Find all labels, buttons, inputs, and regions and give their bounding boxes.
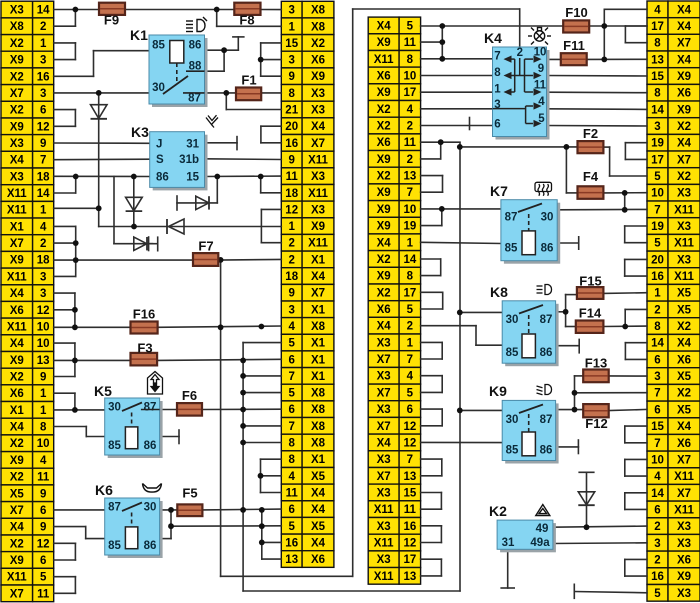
svg-text:3: 3 bbox=[288, 304, 294, 316]
svg-text:X9: X9 bbox=[377, 271, 391, 283]
svg-text:5: 5 bbox=[40, 572, 47, 584]
svg-text:4: 4 bbox=[40, 455, 47, 467]
svg-text:X4: X4 bbox=[677, 4, 692, 16]
svg-text:3: 3 bbox=[40, 271, 46, 283]
svg-text:87: 87 bbox=[108, 502, 121, 514]
svg-text:2: 2 bbox=[654, 521, 660, 533]
svg-text:2: 2 bbox=[407, 154, 413, 166]
svg-text:X4: X4 bbox=[10, 338, 25, 350]
svg-text:X2: X2 bbox=[677, 321, 691, 333]
svg-text:X1: X1 bbox=[311, 454, 326, 466]
svg-text:K8: K8 bbox=[490, 284, 508, 300]
svg-text:X1: X1 bbox=[311, 254, 326, 266]
svg-text:J: J bbox=[156, 138, 162, 150]
svg-text:18: 18 bbox=[37, 171, 50, 183]
svg-text:86: 86 bbox=[541, 243, 554, 255]
svg-text:K1: K1 bbox=[130, 27, 148, 43]
svg-text:8: 8 bbox=[407, 271, 414, 283]
svg-text:X4: X4 bbox=[311, 537, 326, 549]
svg-text:X7: X7 bbox=[377, 421, 391, 433]
svg-text:7: 7 bbox=[288, 421, 294, 433]
svg-text:1: 1 bbox=[40, 388, 47, 400]
svg-text:X2: X2 bbox=[10, 438, 24, 450]
svg-text:X8: X8 bbox=[311, 404, 326, 416]
svg-text:X11: X11 bbox=[308, 238, 328, 250]
svg-text:14: 14 bbox=[651, 488, 664, 500]
svg-text:X2: X2 bbox=[10, 472, 24, 484]
svg-text:86: 86 bbox=[144, 540, 157, 552]
svg-text:F6: F6 bbox=[182, 388, 197, 403]
svg-text:6: 6 bbox=[40, 555, 46, 567]
svg-text:X9: X9 bbox=[677, 571, 691, 583]
svg-text:X3: X3 bbox=[377, 404, 391, 416]
svg-text:5: 5 bbox=[407, 304, 414, 316]
svg-text:4: 4 bbox=[40, 221, 47, 233]
svg-text:X2: X2 bbox=[10, 105, 24, 117]
svg-text:6: 6 bbox=[654, 354, 660, 366]
svg-text:X3: X3 bbox=[377, 337, 391, 349]
svg-text:X4: X4 bbox=[677, 21, 692, 33]
svg-text:15: 15 bbox=[186, 172, 199, 184]
svg-text:X2: X2 bbox=[377, 171, 391, 183]
svg-text:2: 2 bbox=[654, 554, 660, 566]
svg-text:87: 87 bbox=[144, 402, 157, 414]
svg-text:X8: X8 bbox=[311, 321, 326, 333]
svg-text:87: 87 bbox=[540, 414, 553, 426]
svg-text:11: 11 bbox=[37, 588, 50, 600]
svg-text:X3: X3 bbox=[10, 138, 24, 150]
svg-text:2: 2 bbox=[407, 121, 413, 133]
svg-text:F16: F16 bbox=[133, 307, 155, 322]
svg-text:1: 1 bbox=[494, 84, 501, 96]
svg-text:X4: X4 bbox=[10, 288, 25, 300]
svg-text:X8: X8 bbox=[311, 21, 326, 33]
svg-text:X4: X4 bbox=[311, 121, 326, 133]
svg-text:87: 87 bbox=[540, 314, 553, 326]
svg-text:K6: K6 bbox=[95, 482, 113, 498]
svg-text:X6: X6 bbox=[377, 71, 391, 83]
svg-text:85: 85 bbox=[108, 540, 121, 552]
svg-text:X8: X8 bbox=[311, 421, 326, 433]
svg-text:6: 6 bbox=[288, 504, 294, 516]
svg-text:6: 6 bbox=[40, 505, 46, 517]
svg-text:10: 10 bbox=[403, 71, 416, 83]
svg-text:19: 19 bbox=[651, 138, 664, 150]
svg-text:1: 1 bbox=[40, 405, 47, 417]
svg-text:X7: X7 bbox=[311, 288, 325, 300]
svg-text:X6: X6 bbox=[10, 388, 24, 400]
svg-text:21: 21 bbox=[285, 105, 298, 117]
svg-text:7: 7 bbox=[407, 187, 413, 199]
svg-text:K5: K5 bbox=[94, 383, 112, 399]
svg-text:30: 30 bbox=[506, 414, 519, 426]
svg-text:2: 2 bbox=[517, 47, 523, 59]
svg-text:X3: X3 bbox=[377, 554, 391, 566]
svg-text:5: 5 bbox=[288, 388, 295, 400]
svg-text:X4: X4 bbox=[10, 422, 25, 434]
svg-text:7: 7 bbox=[40, 155, 46, 167]
svg-text:X4: X4 bbox=[10, 522, 25, 534]
svg-text:16: 16 bbox=[285, 138, 298, 150]
svg-text:X9: X9 bbox=[10, 121, 24, 133]
svg-text:K2: K2 bbox=[489, 503, 507, 519]
svg-text:X8: X8 bbox=[311, 388, 326, 400]
svg-text:X7: X7 bbox=[10, 588, 24, 600]
svg-text:3: 3 bbox=[288, 5, 294, 17]
svg-text:9: 9 bbox=[288, 71, 294, 83]
svg-text:85: 85 bbox=[152, 40, 165, 52]
svg-text:6: 6 bbox=[40, 105, 46, 117]
svg-text:9: 9 bbox=[40, 372, 46, 384]
svg-text:1: 1 bbox=[40, 205, 47, 217]
svg-text:X1: X1 bbox=[311, 304, 326, 316]
svg-text:K3: K3 bbox=[131, 124, 149, 140]
svg-text:1: 1 bbox=[654, 288, 661, 300]
svg-text:X11: X11 bbox=[308, 155, 328, 167]
svg-text:X4: X4 bbox=[311, 488, 326, 500]
svg-text:3: 3 bbox=[40, 288, 46, 300]
svg-text:17: 17 bbox=[403, 287, 416, 299]
svg-text:X11: X11 bbox=[308, 188, 328, 200]
svg-text:X9: X9 bbox=[677, 71, 691, 83]
svg-text:X11: X11 bbox=[7, 188, 27, 200]
svg-text:X2: X2 bbox=[377, 121, 391, 133]
svg-text:12: 12 bbox=[37, 305, 50, 317]
svg-text:X6: X6 bbox=[677, 554, 691, 566]
svg-text:8: 8 bbox=[494, 67, 501, 79]
svg-text:F11: F11 bbox=[563, 38, 585, 53]
svg-text:X9: X9 bbox=[311, 71, 325, 83]
svg-text:X2: X2 bbox=[677, 121, 691, 133]
svg-text:X9: X9 bbox=[10, 555, 24, 567]
svg-text:10: 10 bbox=[37, 322, 50, 334]
svg-text:8: 8 bbox=[288, 454, 295, 466]
svg-text:X7: X7 bbox=[311, 138, 325, 150]
svg-text:X4: X4 bbox=[677, 138, 692, 150]
svg-text:X2: X2 bbox=[377, 254, 391, 266]
svg-text:3: 3 bbox=[654, 538, 660, 550]
svg-text:X2: X2 bbox=[677, 171, 691, 183]
svg-text:14: 14 bbox=[403, 254, 416, 266]
svg-text:16: 16 bbox=[651, 571, 664, 583]
svg-text:2: 2 bbox=[654, 304, 660, 316]
svg-text:30: 30 bbox=[541, 212, 554, 224]
svg-text:10: 10 bbox=[37, 438, 50, 450]
svg-text:7: 7 bbox=[288, 371, 294, 383]
svg-text:X11: X11 bbox=[7, 572, 27, 584]
svg-text:3: 3 bbox=[654, 121, 660, 133]
svg-text:31: 31 bbox=[502, 537, 515, 549]
svg-text:X11: X11 bbox=[374, 571, 394, 583]
svg-text:31b: 31b bbox=[179, 154, 199, 166]
svg-text:X6: X6 bbox=[311, 55, 325, 67]
svg-text:X4: X4 bbox=[377, 321, 392, 333]
svg-text:X4: X4 bbox=[677, 54, 692, 66]
svg-text:X6: X6 bbox=[311, 554, 325, 566]
svg-text:14: 14 bbox=[651, 104, 664, 116]
svg-text:16: 16 bbox=[37, 71, 50, 83]
svg-text:X8: X8 bbox=[311, 5, 326, 17]
svg-text:15: 15 bbox=[651, 71, 664, 83]
svg-text:X11: X11 bbox=[674, 271, 694, 283]
svg-text:8: 8 bbox=[40, 422, 47, 434]
svg-text:7: 7 bbox=[407, 454, 413, 466]
svg-text:F5: F5 bbox=[182, 486, 197, 501]
svg-text:2: 2 bbox=[40, 238, 46, 250]
svg-text:X11: X11 bbox=[374, 504, 394, 516]
svg-text:X2: X2 bbox=[377, 104, 391, 116]
svg-text:9: 9 bbox=[40, 522, 46, 534]
svg-text:30: 30 bbox=[506, 314, 519, 326]
svg-text:9: 9 bbox=[40, 138, 46, 150]
svg-text:1: 1 bbox=[40, 38, 47, 50]
svg-text:87: 87 bbox=[505, 212, 518, 224]
svg-text:3: 3 bbox=[40, 88, 46, 100]
svg-text:2: 2 bbox=[407, 321, 413, 333]
svg-text:14: 14 bbox=[37, 5, 50, 17]
svg-text:X11: X11 bbox=[7, 271, 27, 283]
svg-text:1: 1 bbox=[288, 221, 295, 233]
svg-text:X3: X3 bbox=[311, 88, 325, 100]
svg-text:X2: X2 bbox=[10, 38, 24, 50]
svg-text:11: 11 bbox=[286, 171, 299, 183]
svg-text:6: 6 bbox=[494, 119, 500, 131]
svg-text:X7: X7 bbox=[10, 238, 24, 250]
svg-text:X11: X11 bbox=[374, 538, 394, 550]
svg-text:11: 11 bbox=[404, 37, 417, 49]
svg-text:1: 1 bbox=[407, 337, 414, 349]
svg-text:X9: X9 bbox=[677, 104, 691, 116]
svg-text:13: 13 bbox=[403, 171, 416, 183]
svg-text:7: 7 bbox=[654, 438, 660, 450]
svg-text:4: 4 bbox=[654, 471, 661, 483]
svg-text:30: 30 bbox=[108, 402, 121, 414]
svg-text:8: 8 bbox=[654, 88, 661, 100]
svg-text:1: 1 bbox=[288, 21, 295, 33]
svg-text:9: 9 bbox=[40, 488, 46, 500]
svg-text:10: 10 bbox=[37, 338, 50, 350]
svg-text:X3: X3 bbox=[677, 188, 691, 200]
svg-text:F14: F14 bbox=[579, 306, 602, 321]
svg-text:4: 4 bbox=[407, 104, 414, 116]
svg-text:7: 7 bbox=[407, 354, 413, 366]
svg-text:X9: X9 bbox=[10, 355, 24, 367]
svg-text:20: 20 bbox=[285, 121, 298, 133]
svg-text:F15: F15 bbox=[579, 274, 601, 289]
svg-text:11: 11 bbox=[286, 488, 299, 500]
svg-text:85: 85 bbox=[505, 243, 518, 255]
svg-text:6: 6 bbox=[288, 404, 294, 416]
svg-text:F2: F2 bbox=[583, 126, 598, 141]
svg-text:11: 11 bbox=[404, 504, 417, 516]
svg-text:12: 12 bbox=[37, 538, 50, 550]
svg-text:X9: X9 bbox=[377, 87, 391, 99]
svg-text:9: 9 bbox=[288, 155, 294, 167]
svg-text:X9: X9 bbox=[311, 221, 325, 233]
svg-text:87: 87 bbox=[188, 93, 201, 105]
svg-text:X7: X7 bbox=[377, 354, 391, 366]
svg-text:X2: X2 bbox=[677, 388, 691, 400]
svg-text:X3: X3 bbox=[377, 454, 391, 466]
svg-text:86: 86 bbox=[156, 172, 169, 184]
svg-text:31: 31 bbox=[186, 138, 199, 150]
svg-text:7: 7 bbox=[654, 388, 660, 400]
svg-text:X8: X8 bbox=[10, 21, 25, 33]
svg-text:X5: X5 bbox=[677, 288, 692, 300]
svg-text:F13: F13 bbox=[585, 356, 607, 371]
svg-text:3: 3 bbox=[288, 55, 294, 67]
svg-text:X5: X5 bbox=[677, 304, 692, 316]
svg-text:15: 15 bbox=[285, 38, 298, 50]
svg-text:X11: X11 bbox=[674, 204, 694, 216]
svg-text:17: 17 bbox=[403, 87, 416, 99]
svg-text:X3: X3 bbox=[377, 371, 391, 383]
svg-text:9: 9 bbox=[288, 288, 294, 300]
svg-text:X2: X2 bbox=[377, 287, 391, 299]
svg-text:X3: X3 bbox=[311, 105, 325, 117]
svg-text:5: 5 bbox=[288, 521, 295, 533]
svg-text:86: 86 bbox=[540, 445, 553, 457]
svg-text:X3: X3 bbox=[677, 588, 691, 600]
svg-text:13: 13 bbox=[403, 571, 416, 583]
svg-text:15: 15 bbox=[651, 421, 664, 433]
svg-text:X6: X6 bbox=[677, 354, 691, 366]
svg-text:16: 16 bbox=[285, 537, 298, 549]
svg-text:8: 8 bbox=[288, 88, 295, 100]
svg-text:11: 11 bbox=[37, 472, 50, 484]
svg-text:13: 13 bbox=[403, 471, 416, 483]
svg-text:X11: X11 bbox=[674, 471, 694, 483]
svg-text:K9: K9 bbox=[489, 383, 507, 399]
svg-text:X6: X6 bbox=[677, 438, 691, 450]
svg-text:X4: X4 bbox=[311, 271, 326, 283]
svg-text:X1: X1 bbox=[10, 221, 25, 233]
svg-text:12: 12 bbox=[403, 538, 416, 550]
svg-text:13: 13 bbox=[651, 54, 664, 66]
svg-text:X4: X4 bbox=[311, 504, 326, 516]
svg-text:2: 2 bbox=[288, 238, 294, 250]
svg-text:X2: X2 bbox=[10, 372, 24, 384]
svg-text:X4: X4 bbox=[377, 237, 392, 249]
svg-text:X5: X5 bbox=[10, 488, 25, 500]
svg-text:F9: F9 bbox=[104, 13, 119, 28]
svg-text:5: 5 bbox=[654, 171, 661, 183]
svg-text:X8: X8 bbox=[311, 438, 326, 450]
svg-text:12: 12 bbox=[403, 437, 416, 449]
svg-text:X9: X9 bbox=[10, 255, 24, 267]
svg-text:30: 30 bbox=[144, 502, 157, 514]
svg-text:4: 4 bbox=[654, 4, 661, 16]
svg-text:X4: X4 bbox=[10, 155, 25, 167]
svg-text:12: 12 bbox=[403, 421, 416, 433]
svg-text:F12: F12 bbox=[585, 416, 607, 431]
svg-text:3: 3 bbox=[654, 371, 660, 383]
svg-text:X6: X6 bbox=[377, 137, 391, 149]
svg-text:5: 5 bbox=[654, 588, 661, 600]
svg-text:K4: K4 bbox=[484, 30, 502, 46]
svg-text:F4: F4 bbox=[583, 169, 599, 184]
svg-text:4: 4 bbox=[288, 471, 295, 483]
svg-text:8: 8 bbox=[407, 54, 414, 66]
svg-text:X7: X7 bbox=[10, 505, 24, 517]
svg-text:X3: X3 bbox=[677, 521, 691, 533]
svg-text:16: 16 bbox=[651, 271, 664, 283]
svg-text:X5: X5 bbox=[677, 371, 692, 383]
svg-text:X5: X5 bbox=[677, 404, 692, 416]
svg-text:X7: X7 bbox=[10, 88, 24, 100]
svg-text:18: 18 bbox=[285, 271, 298, 283]
svg-text:X1: X1 bbox=[311, 371, 326, 383]
svg-text:15: 15 bbox=[403, 488, 416, 500]
svg-text:17: 17 bbox=[403, 554, 416, 566]
svg-text:X3: X3 bbox=[377, 488, 391, 500]
svg-text:19: 19 bbox=[651, 221, 664, 233]
svg-text:86: 86 bbox=[144, 440, 157, 452]
svg-text:49: 49 bbox=[536, 523, 549, 535]
svg-text:X7: X7 bbox=[377, 387, 391, 399]
svg-text:X11: X11 bbox=[374, 54, 394, 66]
svg-text:10: 10 bbox=[651, 454, 664, 466]
svg-text:X9: X9 bbox=[377, 187, 391, 199]
svg-text:X7: X7 bbox=[677, 38, 691, 50]
svg-text:6: 6 bbox=[288, 354, 294, 366]
svg-text:13: 13 bbox=[37, 355, 50, 367]
svg-text:2: 2 bbox=[40, 21, 46, 33]
svg-text:X2: X2 bbox=[311, 38, 325, 50]
svg-text:X3: X3 bbox=[677, 221, 691, 233]
svg-text:X6: X6 bbox=[10, 305, 24, 317]
svg-text:X7: X7 bbox=[377, 471, 391, 483]
svg-text:F1: F1 bbox=[241, 73, 256, 88]
svg-text:8: 8 bbox=[654, 321, 661, 333]
svg-text:X5: X5 bbox=[311, 471, 326, 483]
svg-text:4: 4 bbox=[407, 371, 414, 383]
svg-text:6: 6 bbox=[654, 504, 660, 516]
svg-text:F10: F10 bbox=[565, 5, 587, 20]
svg-text:X5: X5 bbox=[311, 521, 326, 533]
svg-text:X11: X11 bbox=[7, 322, 27, 334]
svg-text:4: 4 bbox=[288, 321, 295, 333]
svg-text:6: 6 bbox=[407, 404, 413, 416]
svg-text:X3: X3 bbox=[10, 5, 24, 17]
svg-text:F8: F8 bbox=[239, 13, 254, 28]
svg-text:X2: X2 bbox=[10, 71, 24, 83]
svg-text:3: 3 bbox=[40, 55, 46, 67]
svg-text:18: 18 bbox=[37, 255, 50, 267]
svg-text:12: 12 bbox=[37, 121, 50, 133]
svg-text:17: 17 bbox=[651, 21, 664, 33]
svg-text:49a: 49a bbox=[530, 537, 550, 549]
svg-text:X4: X4 bbox=[677, 421, 692, 433]
svg-text:2: 2 bbox=[288, 254, 294, 266]
svg-text:X9: X9 bbox=[10, 55, 24, 67]
svg-text:X1: X1 bbox=[311, 338, 326, 350]
svg-text:X7: X7 bbox=[677, 488, 691, 500]
svg-text:8: 8 bbox=[288, 438, 295, 450]
svg-text:X7: X7 bbox=[677, 454, 691, 466]
svg-text:14: 14 bbox=[37, 188, 50, 200]
svg-text:5: 5 bbox=[654, 238, 661, 250]
svg-text:13: 13 bbox=[285, 554, 298, 566]
svg-text:5: 5 bbox=[407, 20, 414, 32]
svg-text:19: 19 bbox=[403, 221, 416, 233]
svg-text:8: 8 bbox=[654, 38, 661, 50]
svg-text:86: 86 bbox=[189, 40, 202, 52]
svg-text:5: 5 bbox=[288, 338, 295, 350]
svg-text:X3: X3 bbox=[311, 204, 325, 216]
svg-text:16: 16 bbox=[403, 521, 416, 533]
svg-text:20: 20 bbox=[651, 254, 664, 266]
